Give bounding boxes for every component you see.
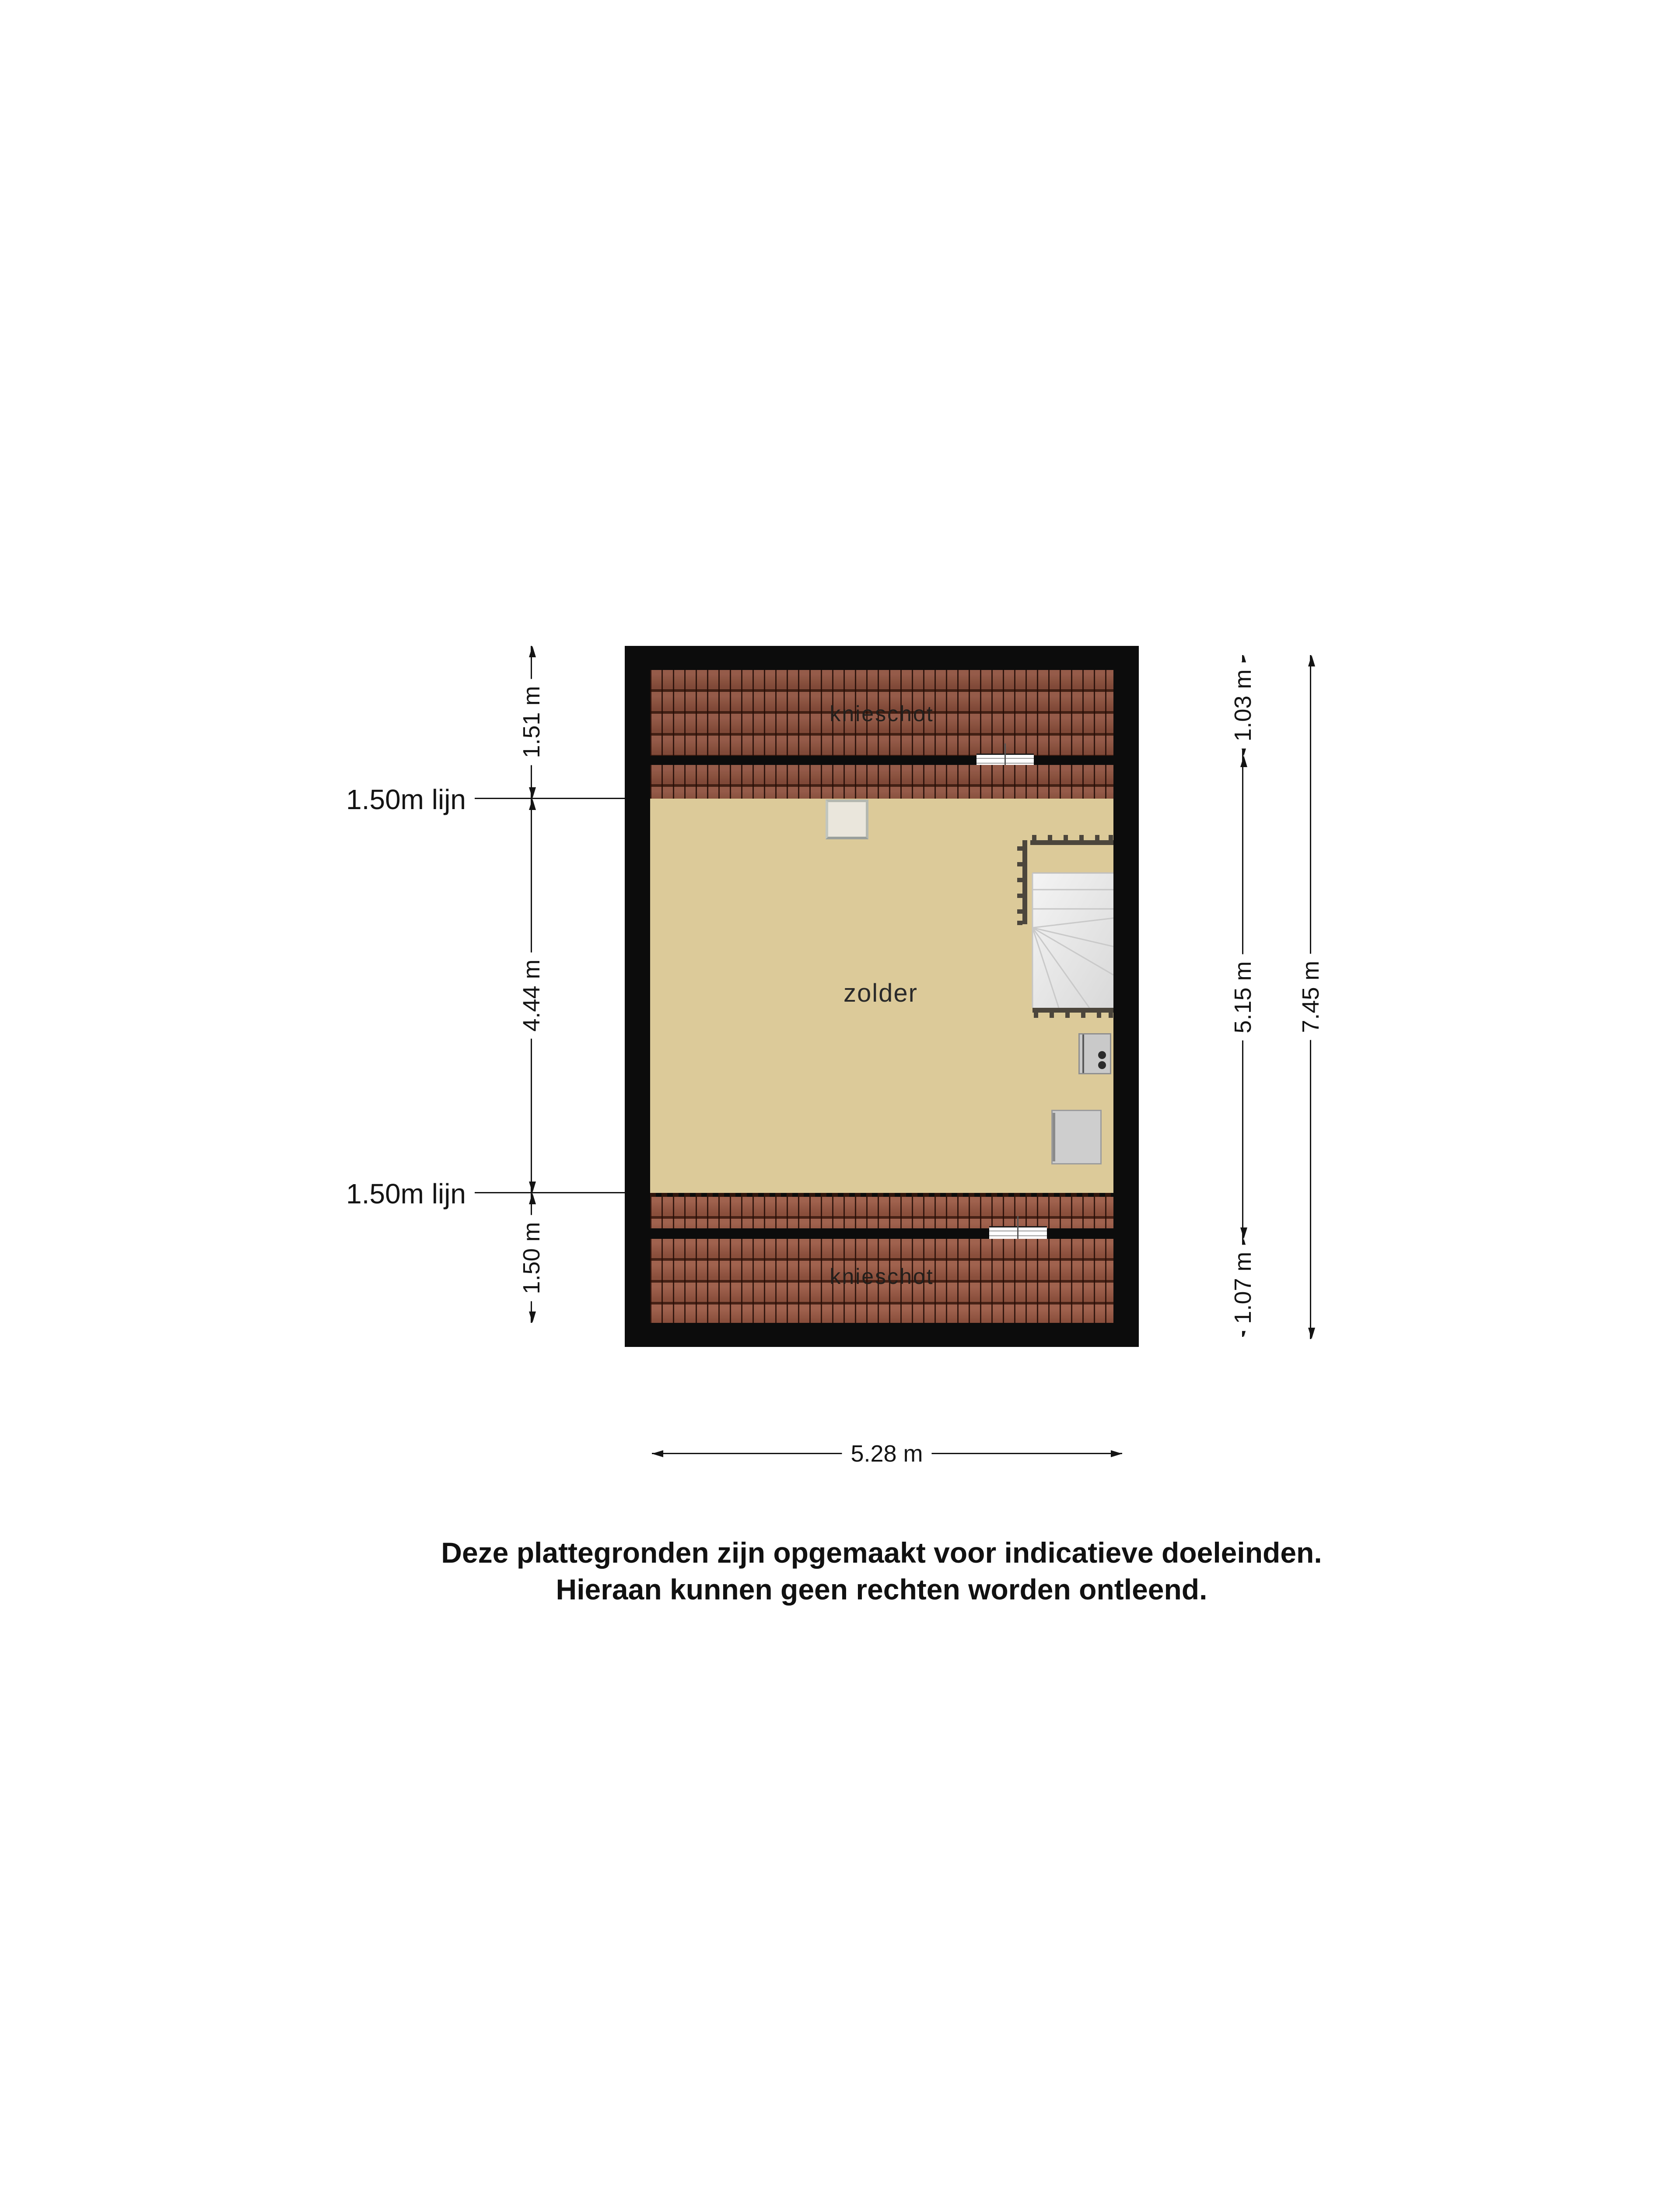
- roof-edge-tabs-bottom: [650, 1193, 1113, 1197]
- dimension-left-middle-label: 4.44 m: [516, 952, 547, 1038]
- knieschot-label-bottom: knieschot: [650, 1264, 1113, 1289]
- one-fifty-line-top: [475, 798, 625, 799]
- floor-plan-page: knieschot knieschot zolder: [0, 0, 1680, 2188]
- dimension-right-bottom-label: 1.07 m: [1228, 1245, 1258, 1331]
- dimension-right-top-label: 1.03 m: [1228, 662, 1258, 748]
- dimension-left-top-label: 1.51 m: [516, 679, 547, 765]
- knieschot-label-top: knieschot: [650, 701, 1113, 726]
- cabinet: [1051, 1110, 1102, 1164]
- one-fifty-line-bottom: [475, 1192, 625, 1193]
- one-fifty-line-top-label: 1.50m lijn: [256, 783, 466, 816]
- boiler-knob-icon: [1098, 1051, 1106, 1059]
- disclaimer-text: Deze plattegronden zijn opgemaakt voor i…: [42, 1534, 1680, 1608]
- roof-strip-upper-inner: [650, 765, 1113, 799]
- dimension-right-total-label: 7.45 m: [1295, 954, 1326, 1040]
- cabinet-edge-line: [1053, 1113, 1055, 1161]
- dimension-bottom-width-label: 5.28 m: [842, 1438, 931, 1469]
- room-label-zolder: zolder: [826, 978, 935, 1008]
- staircase: [1017, 831, 1113, 1022]
- disclaimer-line-1: Deze plattegronden zijn opgemaakt voor i…: [42, 1534, 1680, 1571]
- dimension-left-bottom-label: 1.50 m: [516, 1215, 547, 1301]
- building-outline: knieschot knieschot zolder: [625, 646, 1139, 1347]
- one-fifty-line-bottom-label: 1.50m lijn: [256, 1178, 466, 1210]
- boiler-door-line: [1082, 1034, 1084, 1073]
- boiler-knob-icon: [1098, 1061, 1106, 1069]
- roof-strip-lower-inner: [650, 1197, 1113, 1228]
- boiler-unit: [1078, 1033, 1111, 1074]
- disclaimer-line-2: Hieraan kunnen geen rechten worden ontle…: [42, 1571, 1680, 1608]
- skylight: [826, 799, 868, 839]
- dimension-right-middle-label: 5.15 m: [1228, 954, 1258, 1040]
